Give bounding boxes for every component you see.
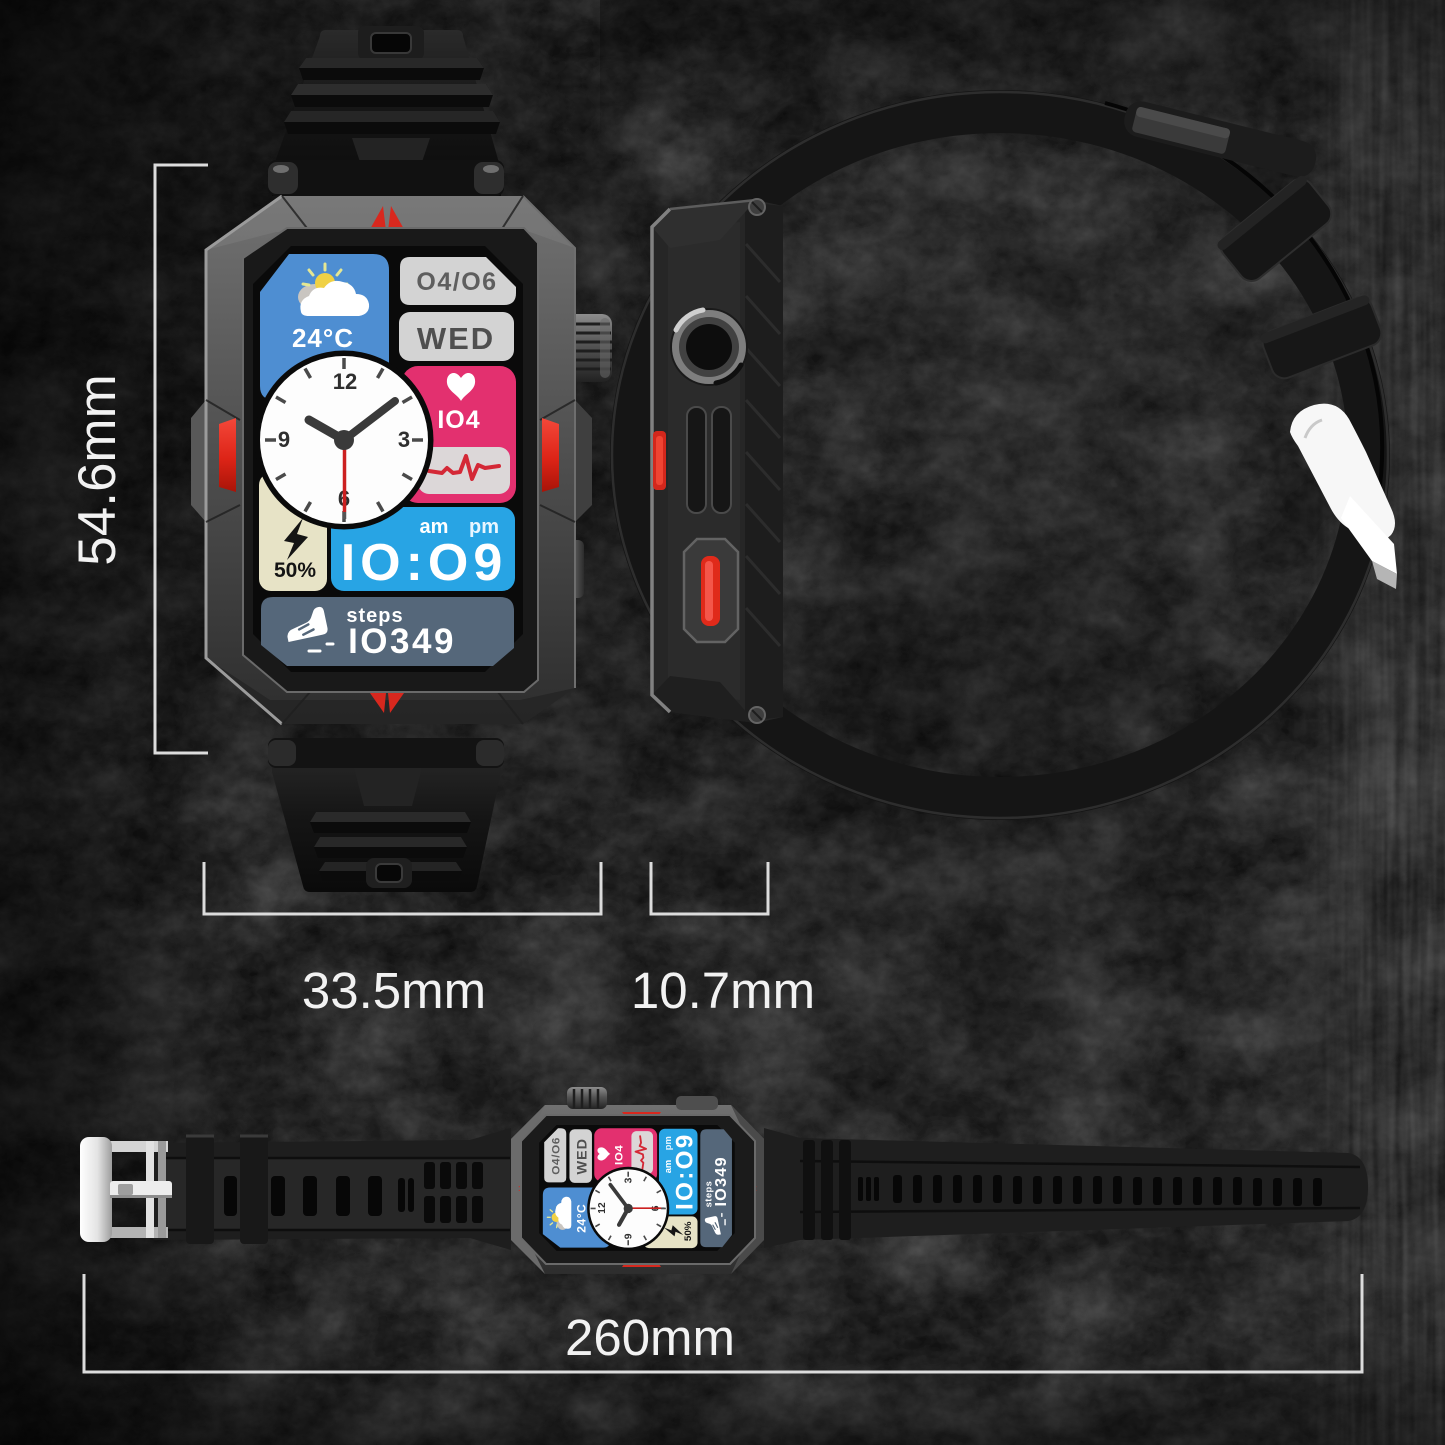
svg-text:260mm: 260mm xyxy=(565,1309,735,1366)
svg-text:10.7mm: 10.7mm xyxy=(631,962,815,1019)
svg-text:33.5mm: 33.5mm xyxy=(302,962,486,1019)
svg-text:54.6mm: 54.6mm xyxy=(68,374,127,565)
